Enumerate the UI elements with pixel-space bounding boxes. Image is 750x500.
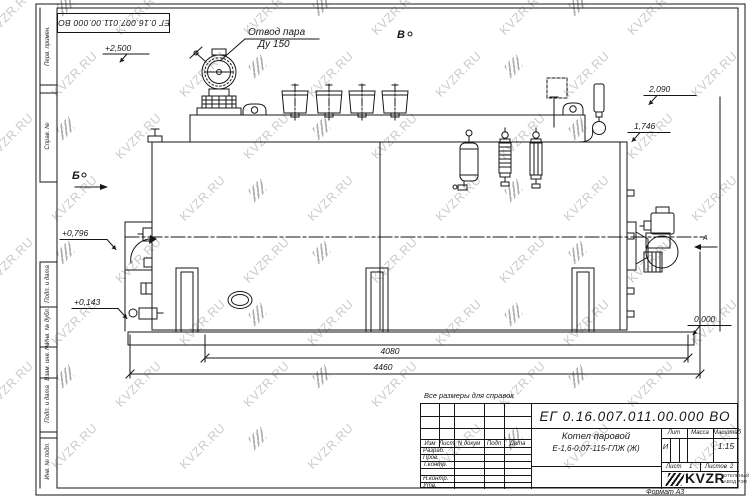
kvzr-logo-sub2: ЗАВОД РЭП [721,479,747,484]
dim-overall-label: 4460 [374,362,393,372]
drawing-sheet: KVZR.RUKVZR.RUKVZR.RUKVZR.RUKVZR.RUKVZR.… [0,0,750,500]
elev-2090: 2,090 [648,84,671,94]
tb-row-tkontr: Т.контр. [423,462,447,468]
view-b-label: Б [72,170,80,182]
tb-row-razrab: Разраб. [423,448,445,454]
elev-0000: 0,000 [694,314,716,324]
kvzr-logo-sub1: КОТЕЛЬНЫЙ [721,473,749,478]
elev-0796: +0,796 [62,228,89,238]
reference-note: Все размеры для справок [424,391,514,400]
water-level-instruments [453,128,542,190]
elev-2500: +2,500 [105,43,132,53]
elev-1746: 1,746 [634,121,656,131]
margin-label-sprav: Справ. № [45,94,51,178]
burner-front [125,129,163,331]
margin-label-perv-primen: Перв. примен. [45,4,51,88]
dim-inner-label: 4080 [381,346,400,356]
support-legs [176,268,594,332]
tb-product-name-1: Котел паровой [531,431,661,442]
tb-row-utv: Утв. [423,483,437,489]
elev-0143: +0,143 [74,297,101,307]
burner-fan-unit [627,207,678,272]
steam-outlet-label-line1: Отвод пара [248,27,305,38]
top-stamp-box: ЕГ 0.16.007.011.00.000 ВО [57,13,170,33]
tb-col-list: Лист [439,441,454,447]
pressure-gauge [578,84,606,142]
tb-logo-cell: KVZR КОТЕЛЬНЫЙ ЗАВОД РЭП [661,468,739,489]
tb-col-ndokum: N докум [454,441,484,447]
tb-col-data: Дата [504,441,531,447]
tb-mass-label: Масса [687,430,713,436]
tb-scale-value: 1:15 [713,441,739,451]
ground-line [128,332,694,345]
title-block: Изм Лист N докум Подп Дата Разраб. Пров.… [420,403,738,488]
view-v-label: В [397,29,405,41]
tb-document-number: ЕГ 0.16.007.011.00.000 ВО [531,404,739,428]
kvzr-logo-text: KVZR [685,470,725,486]
top-stamp-number: ЕГ 0.16.007.011.00.000 ВО [58,18,170,28]
tb-lit-label: Лит [661,430,687,436]
tb-col-podp: Подп [484,441,504,447]
margin-label-inv-podl: Инв. № подл. [45,419,51,500]
thermometer [547,78,567,127]
tb-col-izm: Изм [421,441,439,447]
view-a-label: А [702,235,708,242]
format-label: Формат А3 [646,489,684,496]
kvzr-logo-icon [665,473,684,486]
steam-outlet-label-line2: Ду 150 [258,39,290,50]
endplate-flanges [627,190,634,317]
tb-row-prov: Пров. [423,455,439,461]
tb-product-name-2: Е-1,6-0,07-115-ГЛЖ (Ж) [531,444,661,453]
tb-scale-label: Масштаб [713,430,739,436]
tb-row-nkontr: Н.контр. [423,476,448,482]
tb-lit-value: И [661,442,670,451]
dimension-lines: 4080 4460 [126,252,704,378]
